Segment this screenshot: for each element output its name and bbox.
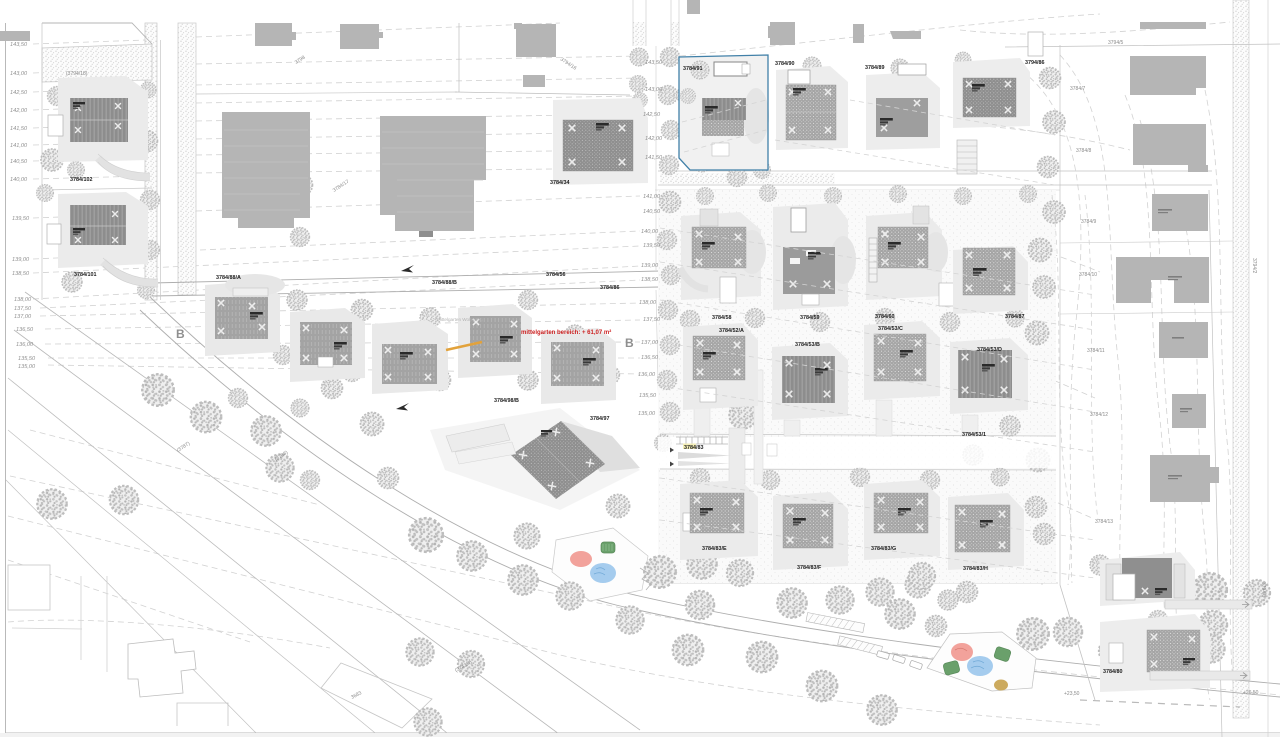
svg-text:140,50: 140,50	[643, 209, 661, 215]
svg-text:135,00: 135,00	[638, 411, 656, 417]
svg-text:3784/89: 3784/89	[865, 65, 885, 71]
svg-text:3784/10: 3784/10	[1079, 272, 1097, 278]
svg-text:3784/53/B: 3784/53/B	[795, 342, 820, 348]
svg-text:139,50: 139,50	[643, 243, 661, 249]
svg-text:+23,50: +23,50	[1064, 691, 1080, 697]
svg-text:3784/8: 3784/8	[1076, 148, 1092, 154]
svg-text:142,00: 142,00	[645, 136, 663, 142]
svg-text:143,50: 143,50	[645, 60, 663, 66]
svg-text:3784/91: 3784/91	[683, 66, 703, 72]
svg-text:143,00: 143,00	[645, 87, 663, 93]
svg-text:143,00: 143,00	[10, 71, 28, 77]
svg-text:3784/86: 3784/86	[600, 285, 620, 291]
svg-text:3784/87: 3784/87	[1005, 314, 1025, 320]
svg-text:3784/80: 3784/80	[1103, 669, 1123, 675]
svg-text:137,00: 137,00	[14, 314, 32, 320]
svg-text:139,50: 139,50	[12, 216, 30, 222]
svg-text:139,00: 139,00	[12, 257, 30, 263]
svg-text:142,50: 142,50	[10, 90, 28, 96]
svg-text:3784/60: 3784/60	[875, 314, 895, 320]
svg-text:3784/88/A: 3784/88/A	[216, 275, 241, 281]
svg-text:138,50: 138,50	[12, 271, 30, 277]
svg-text:135,00: 135,00	[18, 364, 36, 370]
svg-text:141,50: 141,50	[10, 126, 28, 132]
svg-text:3784/83/G: 3784/83/G	[871, 546, 896, 552]
svg-text:142,50: 142,50	[643, 112, 661, 118]
svg-text:3784/83/H: 3784/83/H	[963, 566, 988, 572]
svg-text:3794/86: 3794/86	[1025, 60, 1045, 66]
svg-text:mittelgarten Wohnweg: mittelgarten Wohnweg	[437, 317, 483, 322]
svg-text:136,00: 136,00	[16, 342, 34, 348]
svg-text:140,50: 140,50	[10, 159, 28, 165]
svg-text:3784/13: 3784/13	[1095, 519, 1113, 525]
svg-text:3784/53/C: 3784/53/C	[878, 326, 903, 332]
svg-text:136,00: 136,00	[638, 372, 656, 378]
svg-text:+26,50: +26,50	[1243, 690, 1259, 696]
svg-text:142,00: 142,00	[10, 108, 28, 114]
svg-text:135,50: 135,50	[639, 393, 657, 399]
svg-text:3784/52/A: 3784/52/A	[719, 328, 744, 334]
svg-text:3784/102: 3784/102	[70, 177, 92, 183]
svg-text:3784/53/1: 3784/53/1	[962, 432, 986, 438]
svg-text:136,50: 136,50	[16, 327, 34, 333]
svg-text:138,00: 138,00	[639, 300, 657, 306]
svg-text:143,50: 143,50	[10, 42, 28, 48]
svg-text:138,50: 138,50	[641, 277, 659, 283]
svg-text:3784/59: 3784/59	[800, 315, 820, 321]
svg-text:3784/83/E: 3784/83/E	[702, 546, 727, 552]
svg-text:3784/53/D: 3784/53/D	[977, 347, 1002, 353]
svg-text:3784/9: 3784/9	[1081, 219, 1097, 225]
svg-text:3784/97: 3784/97	[590, 416, 610, 422]
svg-text:3794/5: 3794/5	[1108, 40, 1124, 46]
svg-text:3784/34: 3784/34	[550, 180, 570, 186]
svg-text:3784/7: 3784/7	[1070, 86, 1086, 92]
svg-text:136,50: 136,50	[641, 355, 659, 361]
svg-text:3784/83: 3784/83	[684, 445, 704, 451]
svg-text:140,00: 140,00	[641, 229, 659, 235]
svg-text:140,00: 140,00	[10, 177, 28, 183]
svg-text:3784/101: 3784/101	[74, 272, 96, 278]
svg-text:141,50: 141,50	[645, 155, 663, 161]
svg-text:3784/90: 3784/90	[775, 61, 795, 67]
svg-text:137,50: 137,50	[14, 306, 32, 312]
svg-text:3784/12: 3784/12	[1090, 412, 1108, 418]
svg-text:137,50: 137,50	[643, 317, 661, 323]
svg-text:138,00: 138,00	[14, 297, 32, 303]
svg-text:3784/11: 3784/11	[1087, 348, 1105, 354]
svg-text:3794/3: 3794/3	[1260, 582, 1266, 598]
svg-text:135,50: 135,50	[18, 356, 36, 362]
svg-text:mittelgarten bereich: + 61,07: mittelgarten bereich: + 61,07 m²	[521, 329, 611, 336]
svg-text:3784/83/F: 3784/83/F	[797, 565, 822, 571]
svg-text:139,00: 139,00	[641, 263, 659, 269]
svg-text:3784/98/B: 3784/98/B	[494, 398, 519, 404]
svg-text:B: B	[176, 327, 185, 341]
svg-text:3784/58: 3784/58	[712, 315, 732, 321]
svg-text:3794/2: 3794/2	[1251, 258, 1257, 274]
svg-text:137,00: 137,00	[641, 340, 659, 346]
svg-text:141,00: 141,00	[10, 143, 28, 149]
svg-text:3784/88/B: 3784/88/B	[432, 280, 457, 286]
svg-text:141,00: 141,00	[643, 194, 661, 200]
svg-text:3784/56: 3784/56	[546, 272, 566, 278]
svg-text:(3794/18): (3794/18)	[66, 71, 88, 77]
svg-text:B: B	[625, 336, 634, 350]
